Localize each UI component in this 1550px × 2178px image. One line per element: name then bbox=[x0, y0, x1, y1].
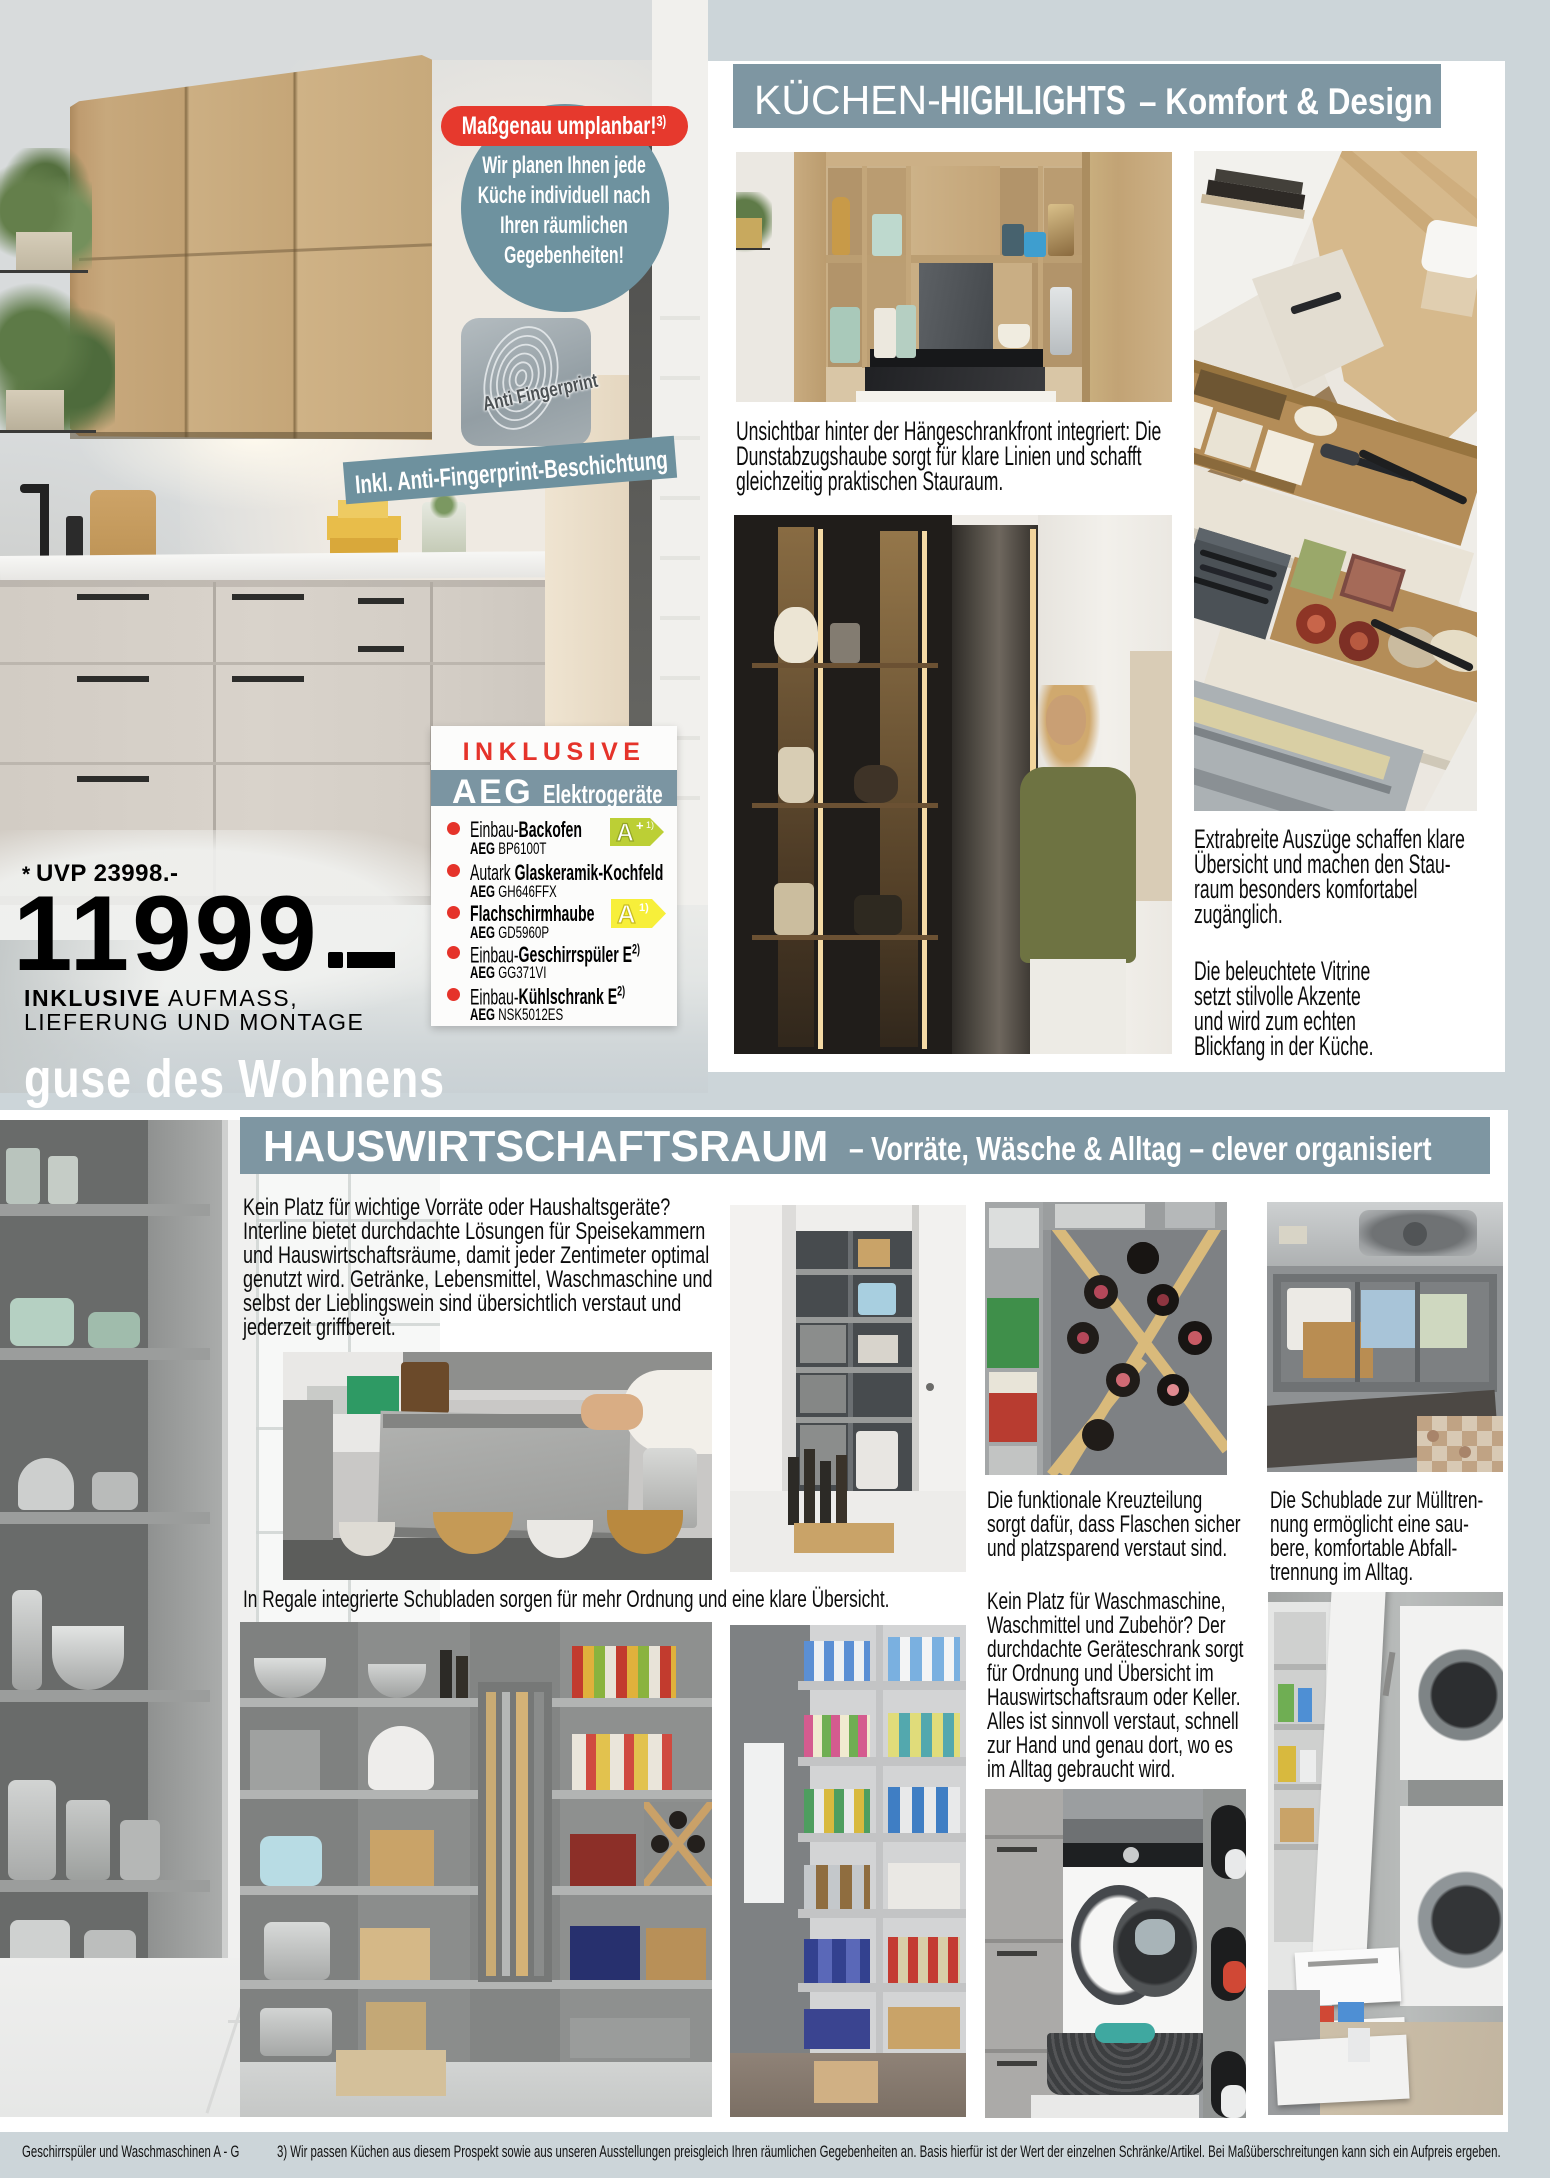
svg-text:1): 1) bbox=[646, 820, 654, 830]
svg-text:A: A bbox=[616, 819, 634, 846]
svg-text:1): 1) bbox=[639, 902, 649, 914]
svg-text:A: A bbox=[617, 899, 636, 928]
svg-text:+: + bbox=[636, 818, 644, 833]
